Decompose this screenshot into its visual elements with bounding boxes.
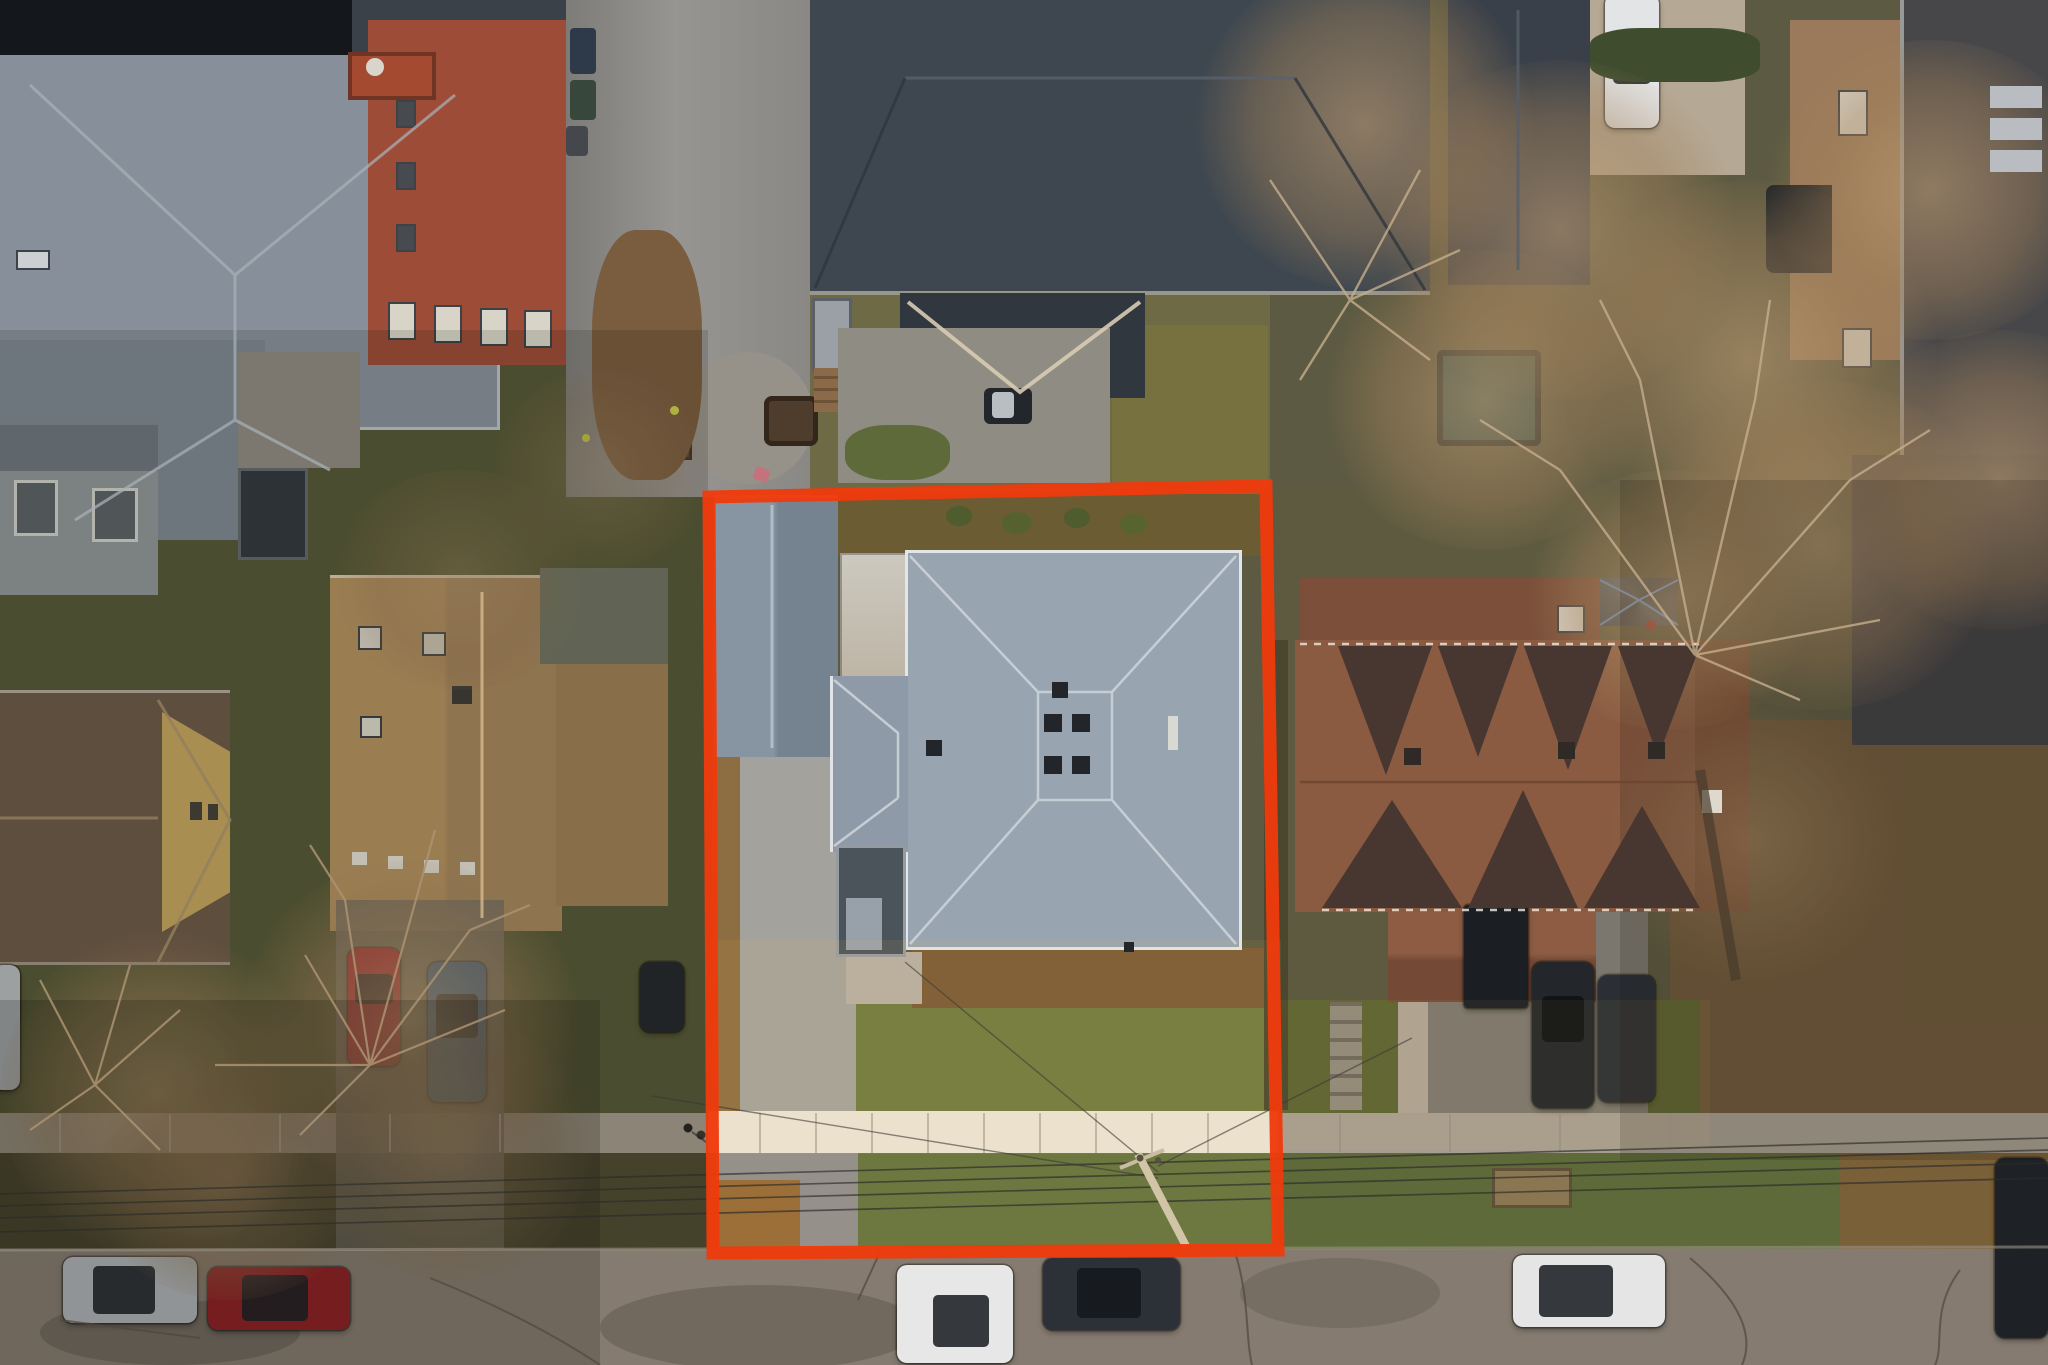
property-outline [709, 486, 1278, 1253]
sidewalk-joints [60, 1114, 2000, 1152]
southwest-tree-branches [30, 830, 530, 1150]
annotation-layer [0, 0, 2048, 1365]
sidewalk-joints-bright [760, 1113, 1208, 1153]
utility-pole [1120, 1150, 1186, 1246]
service-wires [652, 962, 1412, 1178]
tree-trunk-east [1700, 770, 1736, 980]
power-lines [0, 1138, 2048, 1232]
pedestrians-on-sidewalk [684, 1124, 707, 1143]
street-cracks [60, 1252, 1960, 1365]
northeast-tree-branches [1270, 170, 1930, 700]
aerial-photo-canvas [0, 0, 2048, 1365]
